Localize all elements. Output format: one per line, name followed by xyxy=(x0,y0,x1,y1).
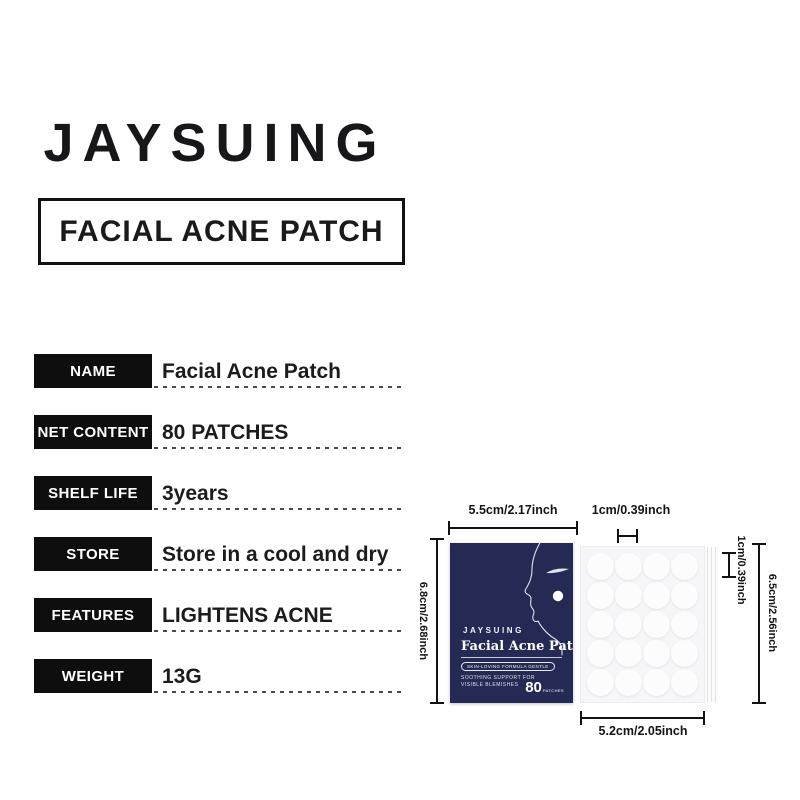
dimension-bracket-box-height xyxy=(430,538,444,704)
dashed-divider xyxy=(154,508,404,510)
patch-cell xyxy=(643,668,671,697)
dimension-bracket-box-width xyxy=(448,521,578,535)
sheet-stack-edge xyxy=(705,547,718,702)
product-infographic: JAYSUING FACIAL ACNE PATCH NAME Facial A… xyxy=(0,0,800,800)
spec-label: STORE xyxy=(34,537,152,571)
package-tagline-line1: SOOTHING SUPPORT FOR xyxy=(461,675,535,681)
patch-cell xyxy=(587,581,615,610)
patch-circle xyxy=(671,611,698,638)
dimension-label-sheet-width: 5.2cm/2.05inch xyxy=(599,724,688,738)
patch-cell xyxy=(587,668,615,697)
patch-cell xyxy=(615,552,643,581)
brand-logo: JAYSUING xyxy=(40,112,390,174)
patch-cell xyxy=(671,668,699,697)
dashed-divider xyxy=(154,569,404,571)
dimension-label-patch-diameter-right: 1cm/0.39inch xyxy=(735,535,747,604)
dashed-divider xyxy=(154,630,404,632)
dashed-divider xyxy=(154,386,404,388)
spec-value: Store in a cool and dry xyxy=(162,539,388,571)
patch-cell xyxy=(643,610,671,639)
patch-cell xyxy=(643,552,671,581)
patch-cell xyxy=(671,610,699,639)
patch-circle xyxy=(643,611,670,638)
page-title: FACIAL ACNE PATCH xyxy=(59,215,383,249)
patch-cell xyxy=(587,552,615,581)
patch-cell xyxy=(671,552,699,581)
spec-row-name: NAME Facial Acne Patch xyxy=(34,354,414,388)
patch-circle xyxy=(615,669,642,696)
spec-row-shelf-life: SHELF LIFE 3years xyxy=(34,476,414,510)
patch-cell xyxy=(615,610,643,639)
patch-sheet xyxy=(580,546,718,703)
sheet-stack-line xyxy=(707,547,708,702)
patch-circle xyxy=(671,669,698,696)
patch-cell xyxy=(643,639,671,668)
sheet-stack-line xyxy=(711,547,712,702)
patch-circle xyxy=(615,640,642,667)
patch-dot-on-cheek xyxy=(553,591,563,601)
package-count-number: 80 xyxy=(525,679,542,696)
spec-label: NET CONTENT xyxy=(34,415,152,449)
dimension-bracket-patch-diameter-right xyxy=(722,552,736,578)
patch-cell xyxy=(587,639,615,668)
patch-cell xyxy=(615,639,643,668)
patch-circle xyxy=(615,611,642,638)
spec-value: 13G xyxy=(162,661,202,693)
patch-circle xyxy=(643,582,670,609)
patch-circle xyxy=(643,553,670,580)
spec-label: NAME xyxy=(34,354,152,388)
dashed-divider xyxy=(154,691,404,693)
package-brand: JAYSUING xyxy=(463,626,524,635)
package-product-name: Facial Acne Patch xyxy=(461,639,573,654)
package-tagline-line2: VISIBLE BLEMISHES xyxy=(461,682,518,688)
spec-value: 80 PATCHES xyxy=(162,417,288,449)
dimension-bracket-patch-diameter-top xyxy=(617,529,638,543)
spec-value: Facial Acne Patch xyxy=(162,356,341,388)
patch-cell xyxy=(643,581,671,610)
patch-cell xyxy=(671,639,699,668)
dimension-label-patch-diameter-top: 1cm/0.39inch xyxy=(592,503,671,517)
title-box: FACIAL ACNE PATCH xyxy=(38,198,405,265)
dimension-label-box-height: 6.8cm/2.68inch xyxy=(417,582,429,660)
dimension-label-sheet-height: 6.5cm/2.56inch xyxy=(766,574,778,652)
package-badge: SKIN-LOVING FORMULA GENTLE xyxy=(461,662,555,671)
patch-circle xyxy=(587,669,614,696)
patch-circle xyxy=(587,611,614,638)
product-box: JAYSUING Facial Acne Patch SKIN-LOVING F… xyxy=(450,543,573,703)
spec-row-store: STORE Store in a cool and dry xyxy=(34,537,414,571)
patch-circle xyxy=(671,582,698,609)
spec-row-weight: WEIGHT 13G xyxy=(34,659,414,693)
patch-circle xyxy=(615,553,642,580)
dimension-diagram: 5.5cm/2.17inch 1cm/0.39inch 6.8cm/2.68in… xyxy=(410,495,795,755)
dimension-bracket-sheet-width xyxy=(580,711,705,725)
spec-list: NAME Facial Acne Patch NET CONTENT 80 PA… xyxy=(34,354,414,720)
spec-label: FEATURES xyxy=(34,598,152,632)
patch-circle xyxy=(615,582,642,609)
patch-circle xyxy=(643,640,670,667)
package-count: 80 PATCHES xyxy=(525,679,564,696)
package-underline xyxy=(461,657,562,658)
spec-label: WEIGHT xyxy=(34,659,152,693)
spec-label: SHELF LIFE xyxy=(34,476,152,510)
patch-cell xyxy=(671,581,699,610)
patch-cell xyxy=(615,581,643,610)
patch-circle xyxy=(671,640,698,667)
patch-circle xyxy=(671,553,698,580)
spec-value: 3years xyxy=(162,478,229,510)
patch-circle xyxy=(643,669,670,696)
package-count-unit: PATCHES xyxy=(543,688,564,693)
patch-cell xyxy=(587,610,615,639)
patch-circle xyxy=(587,582,614,609)
spec-value: LIGHTENS ACNE xyxy=(162,600,333,632)
patch-circle xyxy=(587,640,614,667)
spec-row-features: FEATURES LIGHTENS ACNE xyxy=(34,598,414,632)
patch-cell xyxy=(615,668,643,697)
spec-row-net-content: NET CONTENT 80 PATCHES xyxy=(34,415,414,449)
dimension-label-box-width: 5.5cm/2.17inch xyxy=(469,503,558,517)
patch-circle xyxy=(587,553,614,580)
sheet-stack-line xyxy=(715,547,716,702)
patch-sheet-grid xyxy=(580,546,705,703)
dimension-bracket-sheet-height xyxy=(752,543,766,704)
dashed-divider xyxy=(154,447,404,449)
